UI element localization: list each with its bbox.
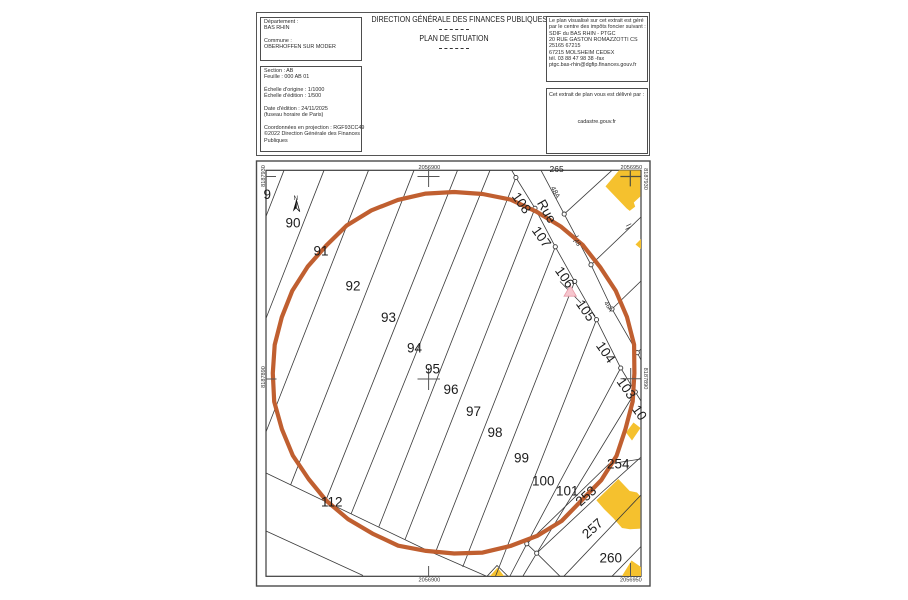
svg-text:99: 99	[514, 451, 529, 466]
svg-text:8187890: 8187890	[261, 366, 267, 388]
svg-text:46A: 46A	[602, 300, 614, 314]
svg-text:98: 98	[488, 425, 503, 440]
svg-text:104: 104	[593, 339, 618, 366]
svg-text:2056950: 2056950	[620, 577, 642, 583]
svg-text:254: 254	[607, 457, 630, 472]
svg-text:91: 91	[314, 244, 329, 259]
svg-text:97: 97	[466, 404, 481, 419]
svg-text:96: 96	[444, 382, 459, 397]
svg-text:94: 94	[407, 341, 423, 356]
svg-text:95: 95	[425, 362, 440, 377]
svg-text:112: 112	[321, 495, 343, 510]
svg-text:8187930: 8187930	[261, 165, 267, 187]
svg-text:107: 107	[529, 223, 554, 250]
svg-text:265: 265	[550, 164, 564, 174]
svg-text:2056900: 2056900	[419, 165, 441, 171]
svg-text:9: 9	[264, 187, 272, 202]
svg-text:93: 93	[381, 310, 396, 325]
svg-text:106: 106	[552, 264, 577, 291]
svg-text:8187930: 8187930	[642, 168, 648, 190]
svg-text:108: 108	[509, 189, 534, 216]
svg-text:257: 257	[579, 515, 606, 541]
svg-text:260: 260	[600, 551, 623, 566]
svg-text:8187890: 8187890	[642, 368, 648, 390]
svg-text:48A: 48A	[549, 186, 561, 201]
svg-text:92: 92	[346, 279, 361, 294]
svg-text:2056900: 2056900	[419, 577, 441, 583]
svg-text:2056950: 2056950	[621, 165, 643, 171]
svg-text:N: N	[294, 195, 298, 202]
svg-text:90: 90	[286, 216, 301, 231]
svg-text:100: 100	[532, 474, 555, 489]
